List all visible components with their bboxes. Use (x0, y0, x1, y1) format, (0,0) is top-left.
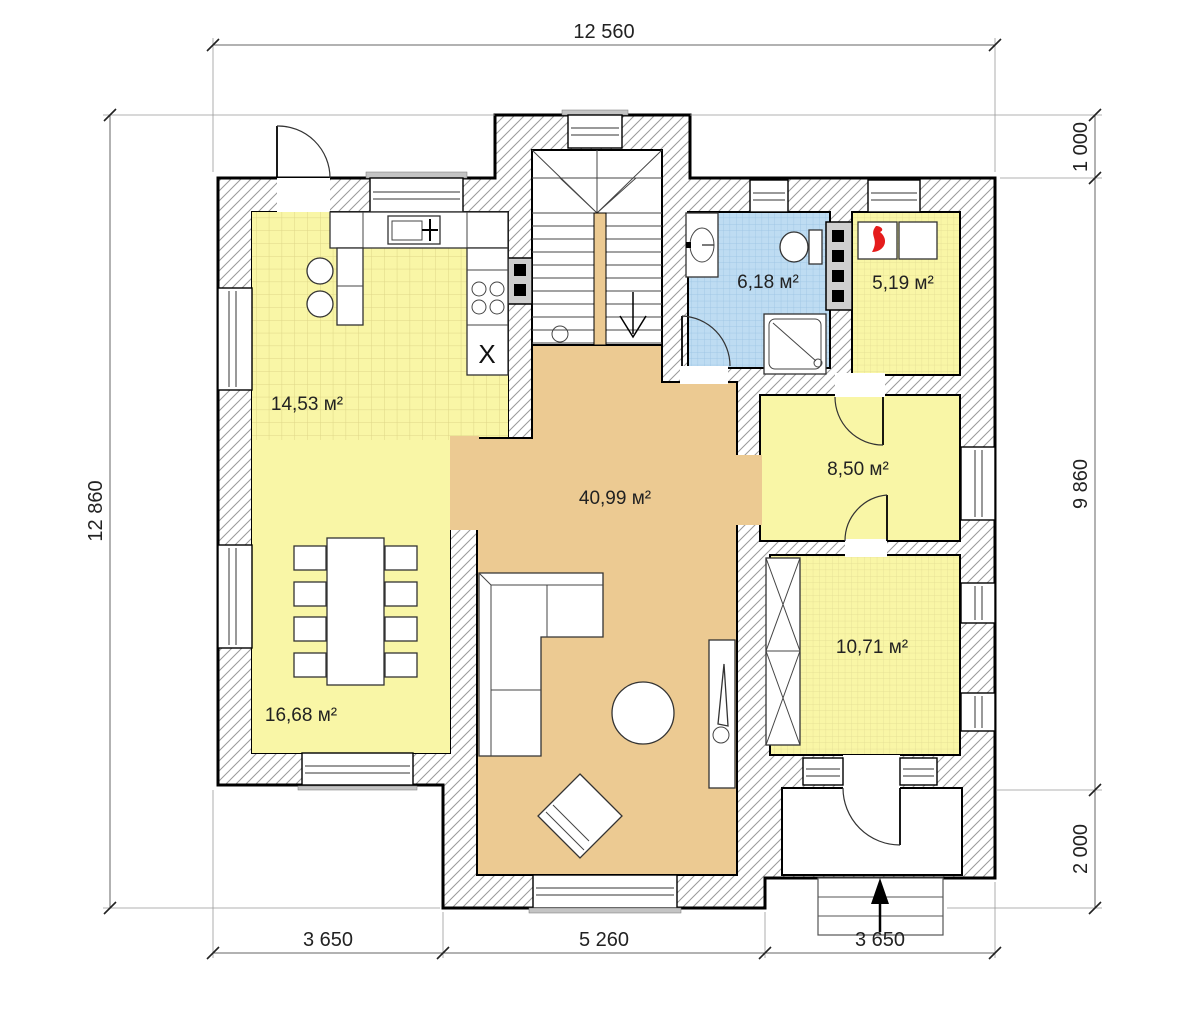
kitchen-stool (307, 258, 333, 284)
kitchen-sink-icon (388, 216, 440, 244)
washbasin-icon (686, 213, 718, 277)
wardrobe (766, 558, 800, 745)
window-entry-right (900, 758, 937, 785)
dim-label-bottom-right: 3 650 (855, 929, 905, 951)
window-living-bottom (529, 875, 681, 913)
window-entry-left (803, 758, 843, 785)
floor-plan-drawing: X (0, 0, 1200, 1029)
passage-living-hall (735, 455, 762, 525)
kitchen-stool (307, 291, 333, 317)
floor-plan-canvas: X (0, 0, 1200, 1029)
window-kitchen-left (218, 288, 252, 390)
room-area-label-bathroom: 6,18 м² (737, 272, 799, 293)
window-boiler-top (868, 180, 920, 212)
tv-stand (709, 640, 735, 788)
entrance-steps (818, 878, 943, 935)
dim-label-bottom-left: 3 650 (303, 929, 353, 951)
window-bathroom-top (750, 180, 788, 212)
dim-label-right-bottom: 2 000 (1070, 824, 1092, 874)
door-kitchen-exterior (277, 126, 330, 212)
toilet-icon (780, 230, 822, 264)
window-dining-left (218, 545, 252, 648)
dim-label-left: 12 860 (85, 480, 107, 541)
window-hall-right (961, 447, 995, 520)
room-area-label-boiler: 5,19 м² (872, 273, 934, 294)
window-dining-bottom (298, 753, 417, 790)
window-bedroom-right-lower (961, 693, 995, 731)
passage-dining-living (450, 436, 479, 530)
window-kitchen-top (366, 172, 467, 212)
dim-label-right-main: 9 860 (1070, 459, 1092, 509)
vent-shaft-bathroom (826, 222, 852, 310)
dining-table (327, 538, 384, 685)
dim-label-top: 12 560 (573, 21, 634, 43)
room-area-label-living: 40,99 м² (579, 488, 651, 509)
window-bedroom-right-upper (961, 583, 995, 623)
room-area-label-kitchen: 14,53 м² (271, 394, 343, 415)
dim-label-bottom-center: 5 260 (579, 929, 629, 951)
vent-shaft-kitchen (508, 258, 532, 304)
boiler-icon (858, 222, 937, 259)
coffee-table (612, 682, 674, 744)
room-area-label-dining: 16,68 м² (265, 705, 337, 726)
entry-vestibule-floor (782, 788, 962, 875)
shower-icon (764, 314, 826, 374)
appliance-x-marker: X (478, 339, 495, 369)
window-stair-tower (562, 110, 628, 148)
room-area-label-bedroom: 10,71 м² (836, 637, 908, 658)
dim-label-right-top: 1 000 (1070, 122, 1092, 172)
room-area-label-hall: 8,50 м² (827, 459, 889, 480)
